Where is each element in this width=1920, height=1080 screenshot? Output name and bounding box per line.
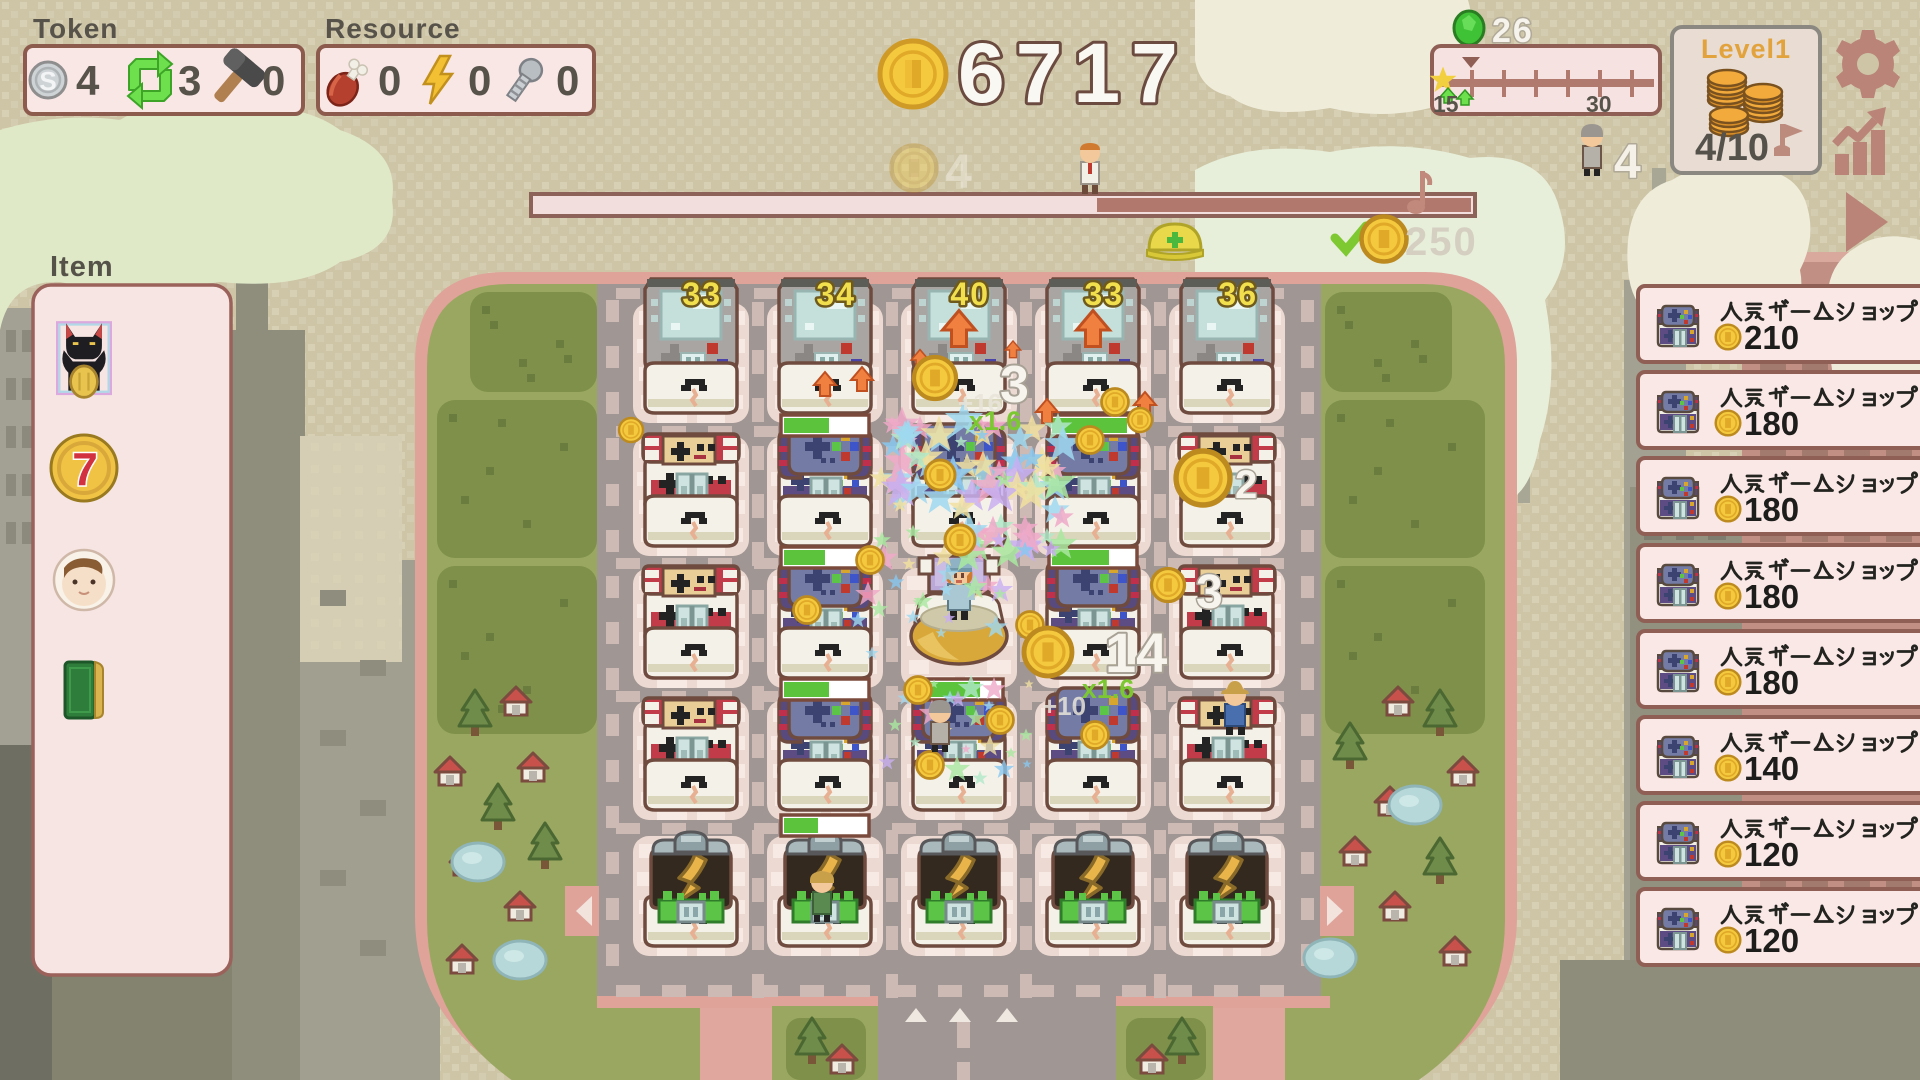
svg-text:33: 33: [1084, 276, 1124, 312]
svg-text:x1.6: x1.6: [969, 406, 1022, 436]
svg-text:7: 7: [72, 443, 98, 495]
svg-text:+10: +10: [1042, 691, 1086, 721]
svg-text:180: 180: [1744, 405, 1799, 442]
svg-text:4/10: 4/10: [1695, 127, 1769, 169]
svg-text:0: 0: [556, 57, 579, 104]
svg-text:0: 0: [262, 57, 285, 104]
svg-text:2: 2: [1235, 463, 1257, 507]
svg-text:40: 40: [950, 276, 990, 312]
svg-text:x1.6: x1.6: [1082, 674, 1135, 704]
svg-text:4: 4: [945, 146, 972, 199]
svg-text:4: 4: [1614, 136, 1641, 189]
svg-text:3: 3: [178, 57, 201, 104]
svg-text:250: 250: [1405, 220, 1478, 264]
svg-text:34: 34: [816, 276, 856, 312]
svg-text:Item: Item: [50, 251, 114, 283]
svg-text:180: 180: [1744, 578, 1799, 615]
svg-text:180: 180: [1744, 491, 1799, 528]
svg-text:120: 120: [1744, 836, 1799, 873]
svg-text:S: S: [39, 66, 56, 96]
svg-text:Resource: Resource: [325, 13, 461, 44]
svg-text:Level1: Level1: [1701, 34, 1791, 64]
svg-text:0: 0: [378, 57, 401, 104]
svg-text:180: 180: [1744, 664, 1799, 701]
svg-text:210: 210: [1744, 319, 1799, 356]
svg-text:0: 0: [468, 57, 491, 104]
svg-text:4: 4: [76, 57, 100, 104]
svg-text:120: 120: [1744, 922, 1799, 959]
svg-text:3: 3: [1196, 566, 1223, 619]
svg-text:6717: 6717: [958, 26, 1189, 120]
svg-text:Token: Token: [33, 13, 118, 44]
svg-text:30: 30: [1586, 91, 1612, 117]
svg-text:140: 140: [1744, 750, 1799, 787]
svg-text:15: 15: [1433, 91, 1459, 117]
svg-text:36: 36: [1218, 276, 1258, 312]
svg-text:33: 33: [682, 276, 722, 312]
